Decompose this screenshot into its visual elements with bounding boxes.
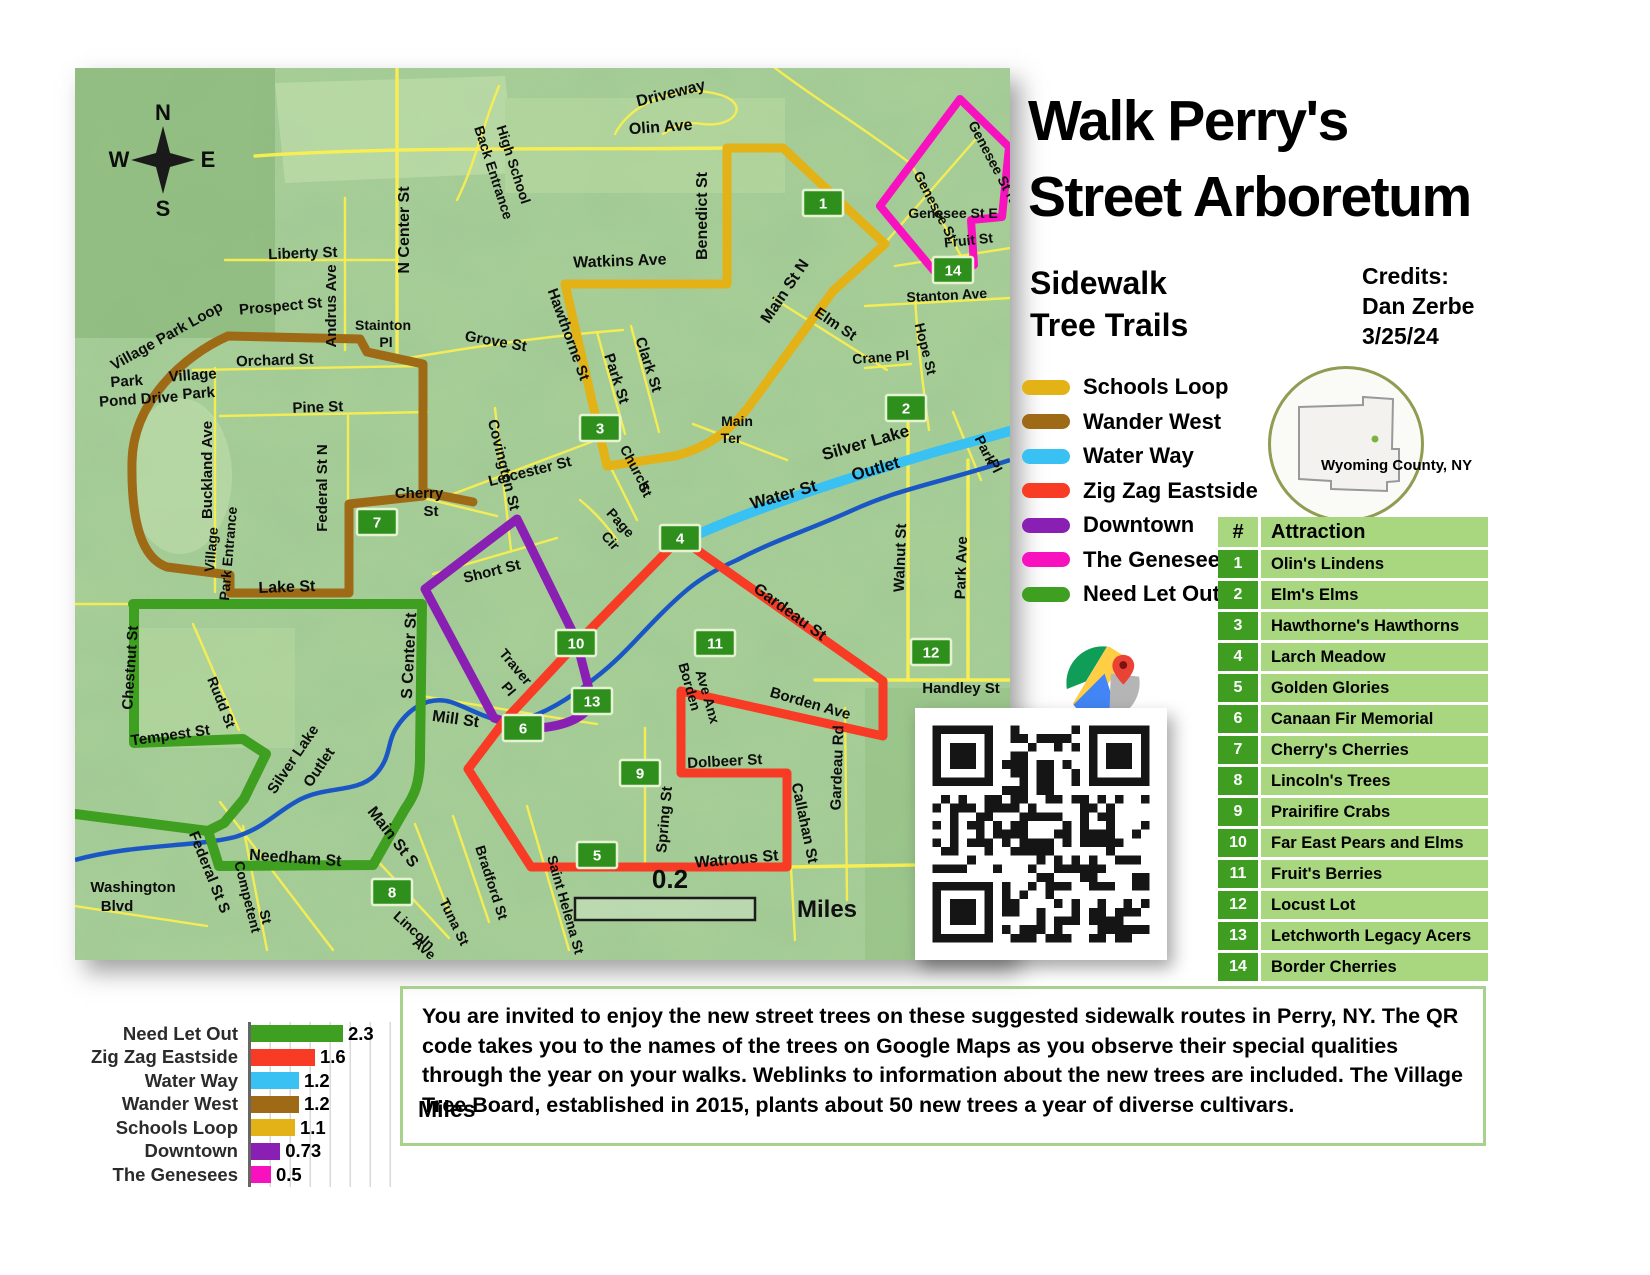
street-label: Benedict St [694, 171, 711, 260]
trail-marker: 8 [372, 879, 412, 905]
title-line-1: Walk Perry's [1028, 84, 1471, 160]
chart-value-label: 1.1 [300, 1117, 326, 1139]
page-title: Walk Perry's Street Arboretum [1028, 84, 1471, 236]
subtitle-line-2: Tree Trails [1030, 304, 1188, 346]
trail-marker-number: 13 [584, 694, 601, 711]
street-label: Federal St N [314, 444, 331, 532]
trail-marker: 11 [695, 630, 735, 656]
street-label: St [424, 503, 439, 520]
street-label: Handley St [922, 680, 1000, 697]
trail-marker: 7 [357, 509, 397, 535]
chart-category-label: Water Way [86, 1069, 238, 1093]
attraction-name-cell: Elm's Elms [1261, 581, 1488, 609]
chart-bar-row: 0.73 [251, 1140, 409, 1164]
legend-item: Water Way [1022, 439, 1258, 474]
title-line-2: Street Arboretum [1028, 160, 1471, 236]
county-inset: Wyoming County, NY [1268, 366, 1424, 522]
column-header-attraction: Attraction [1261, 517, 1488, 547]
table-row: 5Golden Glories [1218, 674, 1488, 702]
attraction-name-cell: Olin's Lindens [1261, 550, 1488, 578]
attraction-name-cell: Larch Meadow [1261, 643, 1488, 671]
attraction-name-cell: Far East Pears and Elms [1261, 829, 1488, 857]
trail-marker: 12 [911, 639, 951, 665]
table-row: 6Canaan Fir Memorial [1218, 705, 1488, 733]
table-row: 11Fruit's Berries [1218, 860, 1488, 888]
chart-bar-row: 0.5 [251, 1163, 409, 1187]
scale-value: 0.2 [652, 864, 688, 894]
attraction-name-cell: Cherry's Cherries [1261, 736, 1488, 764]
chart-value-label: 0.73 [285, 1140, 321, 1162]
attraction-name-cell: Letchworth Legacy Acers [1261, 922, 1488, 950]
chart-value-label: 1.2 [304, 1070, 330, 1092]
chart-plot-area: 2.31.61.21.21.10.730.5 [248, 1022, 409, 1187]
table-row: 9Prairifire Crabs [1218, 798, 1488, 826]
chart-category-label: The Genesees [86, 1163, 238, 1187]
trail-marker-number: 3 [596, 421, 604, 438]
compass-south: S [156, 196, 171, 221]
street-label: Village [168, 365, 217, 385]
table-row: 3Hawthorne's Hawthorns [1218, 612, 1488, 640]
table-row: 2Elm's Elms [1218, 581, 1488, 609]
credits-block: Credits: Dan Zerbe 3/25/24 [1362, 262, 1474, 352]
column-header-number: # [1218, 517, 1258, 547]
chart-bar [251, 1166, 271, 1183]
legend-item-label: Schools Loop [1083, 374, 1228, 400]
street-label: Ter [721, 430, 742, 446]
attraction-name-cell: Locust Lot [1261, 891, 1488, 919]
table-row: 4Larch Meadow [1218, 643, 1488, 671]
trail-marker-number: 7 [373, 515, 381, 532]
attraction-number-cell: 14 [1218, 953, 1258, 981]
trail-marker: 14 [933, 257, 973, 283]
legend-item-label: Need Let Out [1083, 581, 1220, 607]
street-label: Lake St [258, 578, 316, 597]
attraction-name-cell: Golden Glories [1261, 674, 1488, 702]
attraction-number-cell: 13 [1218, 922, 1258, 950]
trail-marker-number: 10 [568, 636, 585, 653]
street-label: Liberty St [268, 244, 338, 263]
attraction-number-cell: 10 [1218, 829, 1258, 857]
qr-code [915, 708, 1167, 960]
trail-color-swatch [1022, 414, 1070, 429]
chart-bar [251, 1143, 280, 1160]
map-canvas: DrivewayOlin AveHigh SchoolBack Entrance… [75, 68, 1010, 960]
trail-marker: 6 [503, 715, 543, 741]
chart-bar [251, 1025, 343, 1042]
table-row: 12Locust Lot [1218, 891, 1488, 919]
trail-marker: 13 [572, 688, 612, 714]
attraction-number-cell: 7 [1218, 736, 1258, 764]
street-label: Andrus Ave [323, 264, 340, 347]
attraction-number-cell: 2 [1218, 581, 1258, 609]
legend-item-label: Zig Zag Eastside [1083, 478, 1258, 504]
subtitle-line-1: Sidewalk [1030, 262, 1188, 304]
street-label: Blvd [101, 898, 134, 915]
street-label: Gardeau Rd [828, 725, 848, 811]
attraction-number-cell: 4 [1218, 643, 1258, 671]
attraction-number-cell: 6 [1218, 705, 1258, 733]
trail-marker: 10 [556, 630, 596, 656]
attraction-number-cell: 9 [1218, 798, 1258, 826]
chart-category-label: Schools Loop [86, 1116, 238, 1140]
trail-color-swatch [1022, 449, 1070, 464]
street-label: Genesee St E [908, 205, 998, 221]
compass-north: N [155, 100, 171, 125]
street-label: Walnut St [891, 523, 910, 592]
trail-marker-number: 6 [519, 721, 527, 738]
attractions-table-body: 1Olin's Lindens2Elm's Elms3Hawthorne's H… [1218, 550, 1488, 981]
county-outline-graphic [1271, 369, 1421, 519]
county-label: Wyoming County, NY [1321, 457, 1521, 474]
chart-value-label: 1.2 [304, 1093, 330, 1115]
chart-bar [251, 1119, 295, 1136]
attraction-number-cell: 5 [1218, 674, 1258, 702]
trail-marker: 5 [577, 842, 617, 868]
invitation-text: You are invited to enjoy the new street … [422, 1004, 1463, 1117]
table-row: 7Cherry's Cherries [1218, 736, 1488, 764]
attraction-number-cell: 1 [1218, 550, 1258, 578]
chart-category-label: Need Let Out [86, 1022, 238, 1046]
trail-marker-number: 4 [676, 531, 685, 548]
trail-marker: 2 [886, 395, 926, 421]
attraction-number-cell: 11 [1218, 860, 1258, 888]
street-label: Buckland Ave [199, 421, 216, 519]
trail-marker-number: 14 [945, 263, 962, 280]
chart-bar-row: 2.3 [251, 1022, 409, 1046]
attraction-name-cell: Hawthorne's Hawthorns [1261, 612, 1488, 640]
chart-category-label: Wander West [86, 1093, 238, 1117]
attraction-name-cell: Border Cherries [1261, 953, 1488, 981]
legend-item: Schools Loop [1022, 370, 1258, 405]
trail-marker-number: 12 [923, 645, 940, 662]
trail-marker-number: 1 [819, 196, 827, 213]
compass-east: E [201, 147, 216, 172]
street-label: N Center St [396, 186, 413, 274]
qr-modules [932, 725, 1149, 942]
trail-color-swatch [1022, 518, 1070, 533]
table-row: 1Olin's Lindens [1218, 550, 1488, 578]
credits-heading: Credits: [1362, 262, 1474, 292]
chart-bar-row: 1.1 [251, 1116, 409, 1140]
trail-marker-number: 11 [707, 636, 723, 653]
chart-bar-row: 1.2 [251, 1069, 409, 1093]
trail-color-swatch [1022, 483, 1070, 498]
attraction-number-cell: 8 [1218, 767, 1258, 795]
legend-item-label: Downtown [1083, 512, 1194, 538]
legend-item-label: Wander West [1083, 409, 1221, 435]
street-label: Park [110, 372, 144, 391]
attraction-number-cell: 12 [1218, 891, 1258, 919]
trail-color-swatch [1022, 587, 1070, 602]
attraction-name-cell: Canaan Fir Memorial [1261, 705, 1488, 733]
table-row: 13Letchworth Legacy Acers [1218, 922, 1488, 950]
chart-category-label: Zig Zag Eastside [86, 1046, 238, 1070]
chart-value-label: 0.5 [276, 1164, 302, 1186]
trail-marker: 1 [803, 190, 843, 216]
chart-value-label: 2.3 [348, 1023, 374, 1045]
chart-category-labels: Need Let OutZig Zag EastsideWater WayWan… [86, 1022, 238, 1187]
attraction-name-cell: Prairifire Crabs [1261, 798, 1488, 826]
street-label: Stainton [355, 317, 411, 333]
chart-bar [251, 1096, 299, 1113]
table-row: 10Far East Pears and Elms [1218, 829, 1488, 857]
street-label: Watkins Ave [573, 251, 667, 271]
street-label: Park Ave [952, 536, 971, 600]
chart-bar [251, 1049, 315, 1066]
attractions-table: # Attraction 1Olin's Lindens2Elm's Elms3… [1218, 517, 1488, 984]
street-label: Orchard St [236, 351, 314, 371]
chart-bar [251, 1072, 299, 1089]
scale-unit: Miles [797, 896, 857, 923]
chart-bar-row: 1.6 [251, 1046, 409, 1070]
table-header-row: # Attraction [1218, 517, 1488, 547]
trail-marker: 9 [620, 760, 660, 786]
street-label: Pl [379, 334, 392, 350]
attraction-number-cell: 3 [1218, 612, 1258, 640]
trail-marker-number: 9 [636, 766, 644, 783]
legend-item-label: Water Way [1083, 443, 1194, 469]
street-label: Cherry [395, 485, 444, 502]
trail-marker-number: 5 [593, 848, 601, 865]
trail-marker-number: 2 [902, 401, 910, 418]
table-row: 14Border Cherries [1218, 953, 1488, 981]
compass-west: W [109, 147, 130, 172]
chart-value-label: 1.6 [320, 1046, 346, 1068]
street-label: Park [182, 384, 216, 403]
chart-bar-row: 1.2 [251, 1093, 409, 1117]
attraction-name-cell: Fruit's Berries [1261, 860, 1488, 888]
invitation-text-box: You are invited to enjoy the new street … [400, 986, 1486, 1146]
legend-item: Zig Zag Eastside [1022, 474, 1258, 509]
trail-marker-number: 8 [388, 885, 396, 902]
trail-color-swatch [1022, 552, 1070, 567]
street-label: Pine St [292, 398, 343, 417]
chart-category-label: Downtown [86, 1140, 238, 1164]
attraction-name-cell: Lincoln's Trees [1261, 767, 1488, 795]
trail-marker: 4 [660, 525, 700, 551]
credits-name: Dan Zerbe [1362, 292, 1474, 322]
trail-color-swatch [1022, 380, 1070, 395]
table-row: 8Lincoln's Trees [1218, 767, 1488, 795]
page-subtitle: Sidewalk Tree Trails [1030, 262, 1188, 346]
legend-item: Wander West [1022, 405, 1258, 440]
street-label: Washington [90, 879, 175, 896]
street-label: Main [721, 413, 753, 429]
legend-item-label: The Genesees [1083, 547, 1232, 573]
arboretum-map: DrivewayOlin AveHigh SchoolBack Entrance… [75, 68, 1010, 960]
perry-location-dot [1372, 436, 1379, 443]
credits-date: 3/25/24 [1362, 322, 1474, 352]
trail-marker: 3 [580, 415, 620, 441]
